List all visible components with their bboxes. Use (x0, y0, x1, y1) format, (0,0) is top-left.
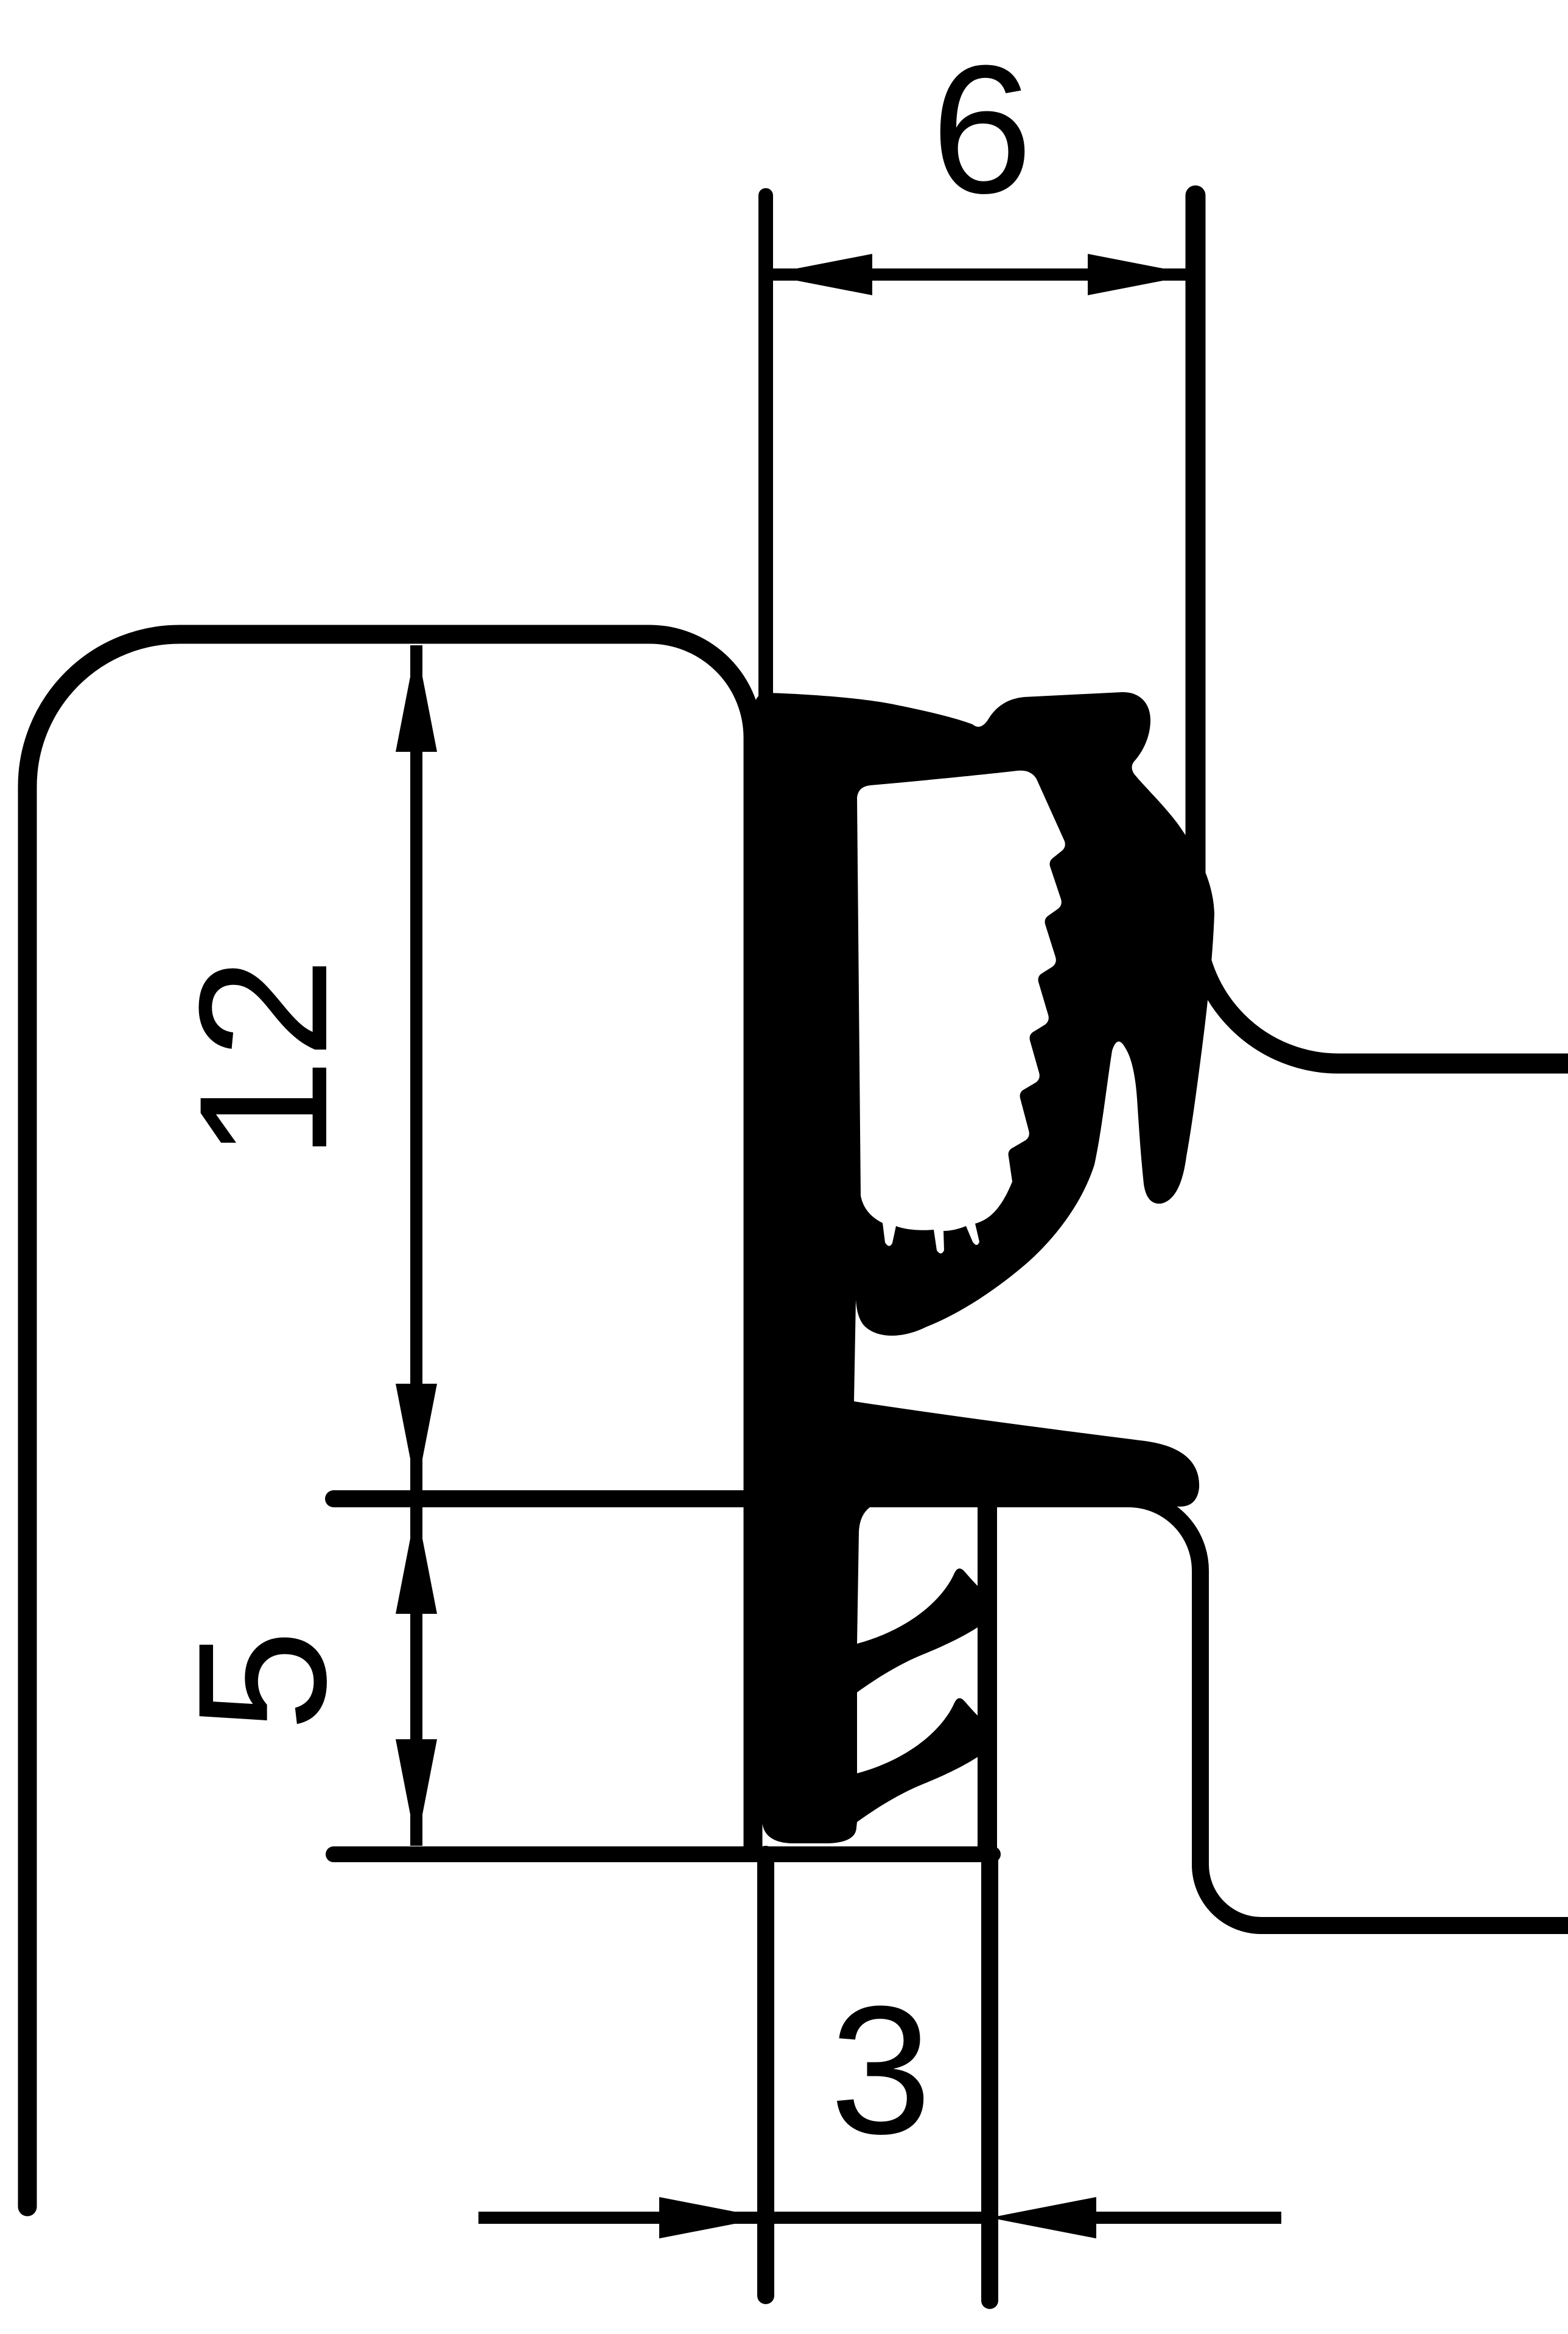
svg-text:3: 3 (830, 1968, 932, 2172)
svg-text:6: 6 (931, 27, 1033, 231)
svg-text:5: 5 (159, 1630, 364, 1731)
svg-text:12: 12 (161, 957, 365, 1160)
